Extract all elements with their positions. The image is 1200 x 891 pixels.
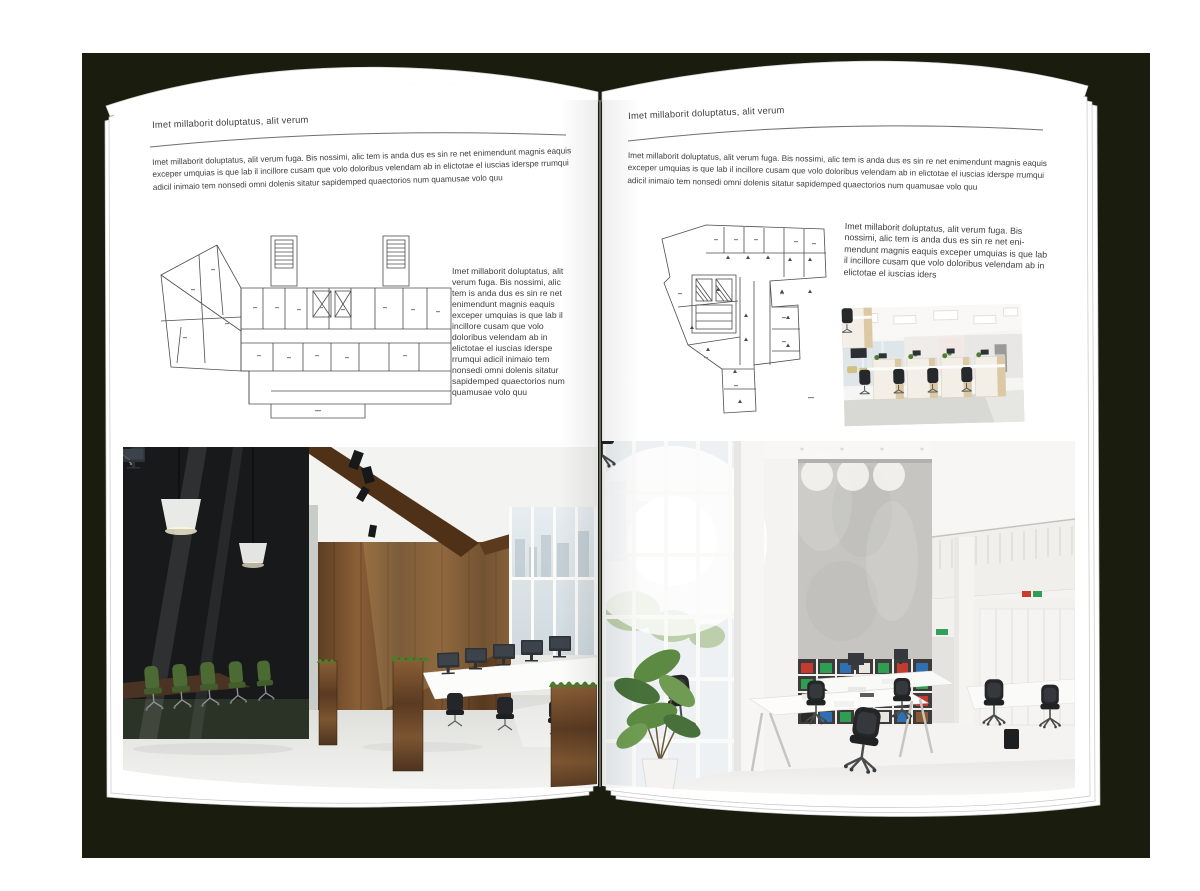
plan-left-room-labels [183,269,440,411]
glass-partition [309,505,318,739]
office-photo-dark [123,447,597,795]
office-photo-cubicles [841,304,1024,427]
concrete-wall [792,451,932,659]
floor-plan-right [648,217,835,424]
right-page-caption: Imet millaborit doluptatus, alit verum f… [843,221,1053,284]
office-photo-bright [602,441,1075,803]
brochure-mockup: { "book": { "left_page": { "header": "Im… [0,0,1200,891]
exit-sign [936,629,948,635]
plan-right-room-labels [678,239,816,398]
left-page-caption: Imet millaborit doluptatus, alit verum f… [452,266,570,398]
meeting-room-dark [123,447,309,739]
plan-right-door-marks [648,217,812,403]
waste-bin [1004,729,1019,749]
floor-plan-left [153,231,455,429]
